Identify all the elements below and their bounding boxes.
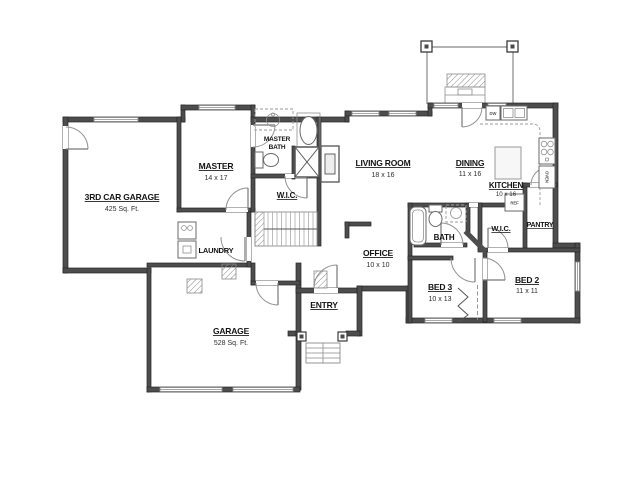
kitchen-island [495, 147, 521, 179]
room-dims-third-car-garage: 425 Sq. Ft. [105, 206, 139, 213]
room-label-office: OFFICE [363, 248, 393, 258]
room-label-master: MASTER [199, 161, 234, 171]
room-dims-bed3: 10 x 13 [429, 296, 452, 303]
room-dims-bed2: 11 x 11 [516, 288, 538, 295]
room-dims-living-room: 18 x 16 [372, 172, 395, 179]
appliance-label-oven: OVEN [545, 171, 550, 183]
garage-door [160, 388, 222, 392]
appliance-label-dw: DW [490, 111, 497, 116]
laundry-fixtures [178, 222, 196, 258]
room-label-bath: BATH [434, 233, 455, 242]
room-label-bed3: BED 3 [428, 282, 453, 292]
utility-sink-icon [178, 222, 196, 239]
toilet-icon [429, 205, 442, 212]
room-label-wic-master: W.I.C. [277, 191, 298, 200]
covered-patio [421, 41, 518, 104]
floor-plan-drawing: 3RD CAR GARAGE 425 Sq. Ft. MASTER 14 x 1… [0, 0, 633, 480]
bifold-doors-icon [458, 288, 468, 322]
porch [297, 332, 347, 363]
bed3-closet [458, 285, 478, 322]
floor-plan-page: 3RD CAR GARAGE 425 Sq. Ft. MASTER 14 x 1… [0, 0, 633, 480]
room-label-living-room: LIVING ROOM [356, 158, 411, 168]
toilet-icon [255, 152, 263, 168]
room-label-entry: ENTRY [310, 300, 338, 310]
room-dims-kitchen: 10 x 16 [496, 191, 517, 198]
patio-step [445, 87, 485, 104]
garage-door [233, 388, 293, 392]
room-dims-office: 10 x 10 [367, 262, 390, 269]
kitchen-sink-icon [501, 106, 527, 120]
room-dims-master: 14 x 17 [205, 175, 228, 182]
room-label-kitchen: KITCHEN [489, 181, 524, 190]
room-label-master-bath-2: BATH [269, 144, 286, 151]
fireplace [321, 146, 339, 182]
porch-steps [306, 343, 340, 363]
room-label-bed2: BED 2 [515, 275, 540, 285]
sink-icon [451, 208, 462, 219]
room-label-third-car-garage: 3RD CAR GARAGE [85, 192, 160, 202]
room-dims-dining: 11 x 16 [459, 171, 482, 178]
staircase [255, 212, 317, 246]
room-label-dining: DINING [456, 158, 485, 168]
kitchen-fixtures [480, 106, 555, 211]
room-label-garage: GARAGE [213, 326, 250, 336]
room-label-laundry: LAUNDRY [199, 246, 234, 255]
washer-icon [178, 241, 196, 258]
room-label-wic-bed2: W.I.C. [491, 224, 510, 233]
room-label-pantry: PANTRY [527, 222, 554, 229]
room-dims-garage: 528 Sq. Ft. [214, 340, 248, 347]
room-label-master-bath-1: MASTER [264, 136, 291, 143]
patio-grill-hatch [447, 74, 485, 87]
appliance-label-ref: REF [510, 201, 519, 206]
